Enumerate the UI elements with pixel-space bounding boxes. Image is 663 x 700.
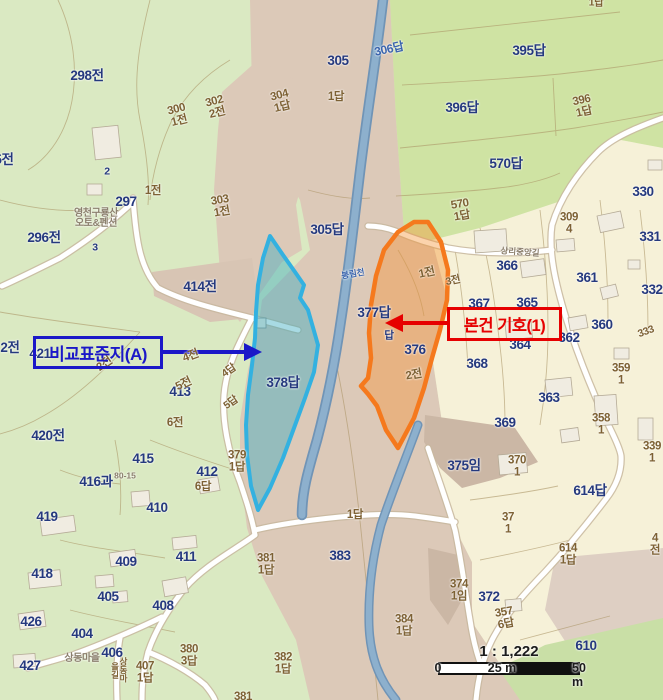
parcel-label: 381 [234,692,252,700]
parcel-label: 380 3답 [180,644,198,667]
parcel-label: 369 [494,416,515,430]
scale-bar-black-segment [509,664,578,673]
parcel-label: 304 1답 [269,88,292,115]
parcel-label: 412 [196,465,217,479]
parcel-label: 3전 [445,274,462,288]
parcel-label: 374 1임 [450,579,468,602]
comparison-standard-callout: 비교표준지(A) [33,336,163,369]
scale-tick-0: 0 [435,661,442,675]
parcel-label: 300 1전 [166,102,189,129]
stream-name-label: 봉림천 [341,268,366,281]
subject-parcel-callout: 본건 기호(1) [447,307,562,341]
parcel-label: 366 [496,259,517,273]
parcel-label: 416과 [79,475,112,489]
parcel-label: 396답 [445,101,478,115]
parcel-label: 395답 [512,44,545,58]
parcel-label: 309 4 [560,212,578,235]
scale-ratio: 1 : 1,222 [438,643,580,660]
parcel-label: 2전 [405,369,423,383]
parcel-label: 381 1답 [257,553,275,576]
parcel-label: 296전 [27,231,60,245]
parcel-label: 37 1 [502,512,514,535]
parcel-label: 361 [576,271,597,285]
parcel-label: 614답 [573,484,606,498]
comparison-standard-label: 비교표준지(A) [49,340,147,365]
parcel-label: 570 1답 [450,198,472,224]
parcel-label: 411 [176,550,197,564]
parcel-label: 5전 [0,153,14,167]
parcel-label: 339 1 [643,441,661,464]
parcel-label: 2전 [0,341,19,355]
parcel-label: 375임 [447,459,480,473]
parcel-label: 614 1답 [559,543,577,566]
parcel-label: 414전 [183,280,216,294]
parcel-label: 427 [19,659,40,673]
parcel-label: 6답 [195,482,211,494]
parcel-label: 297 [115,195,136,209]
parcel-label: 305 [327,54,348,68]
parcel-label: 377답 [357,306,390,320]
parcel-label: 379 1답 [228,450,246,473]
scale-tick-25: 25 m [488,661,517,675]
parcel-label: 404 [71,627,92,641]
parcel-label: 6전 [167,418,183,430]
parcel-label: 357 6답 [494,606,516,632]
pension-name-label: 영천구룡산 오토&펜션 [74,209,118,229]
parcel-label: 답 [384,331,393,342]
parcel-label: 405 [97,590,118,604]
parcel-label: 4전 [181,349,200,366]
scale-tick-50: 50 m [572,661,586,689]
parcel-label: 80-15 [114,472,136,481]
parcel-label: 305답 [310,223,343,237]
parcel-label: 1전 [418,267,436,282]
parcel-label: 378답 [266,376,299,390]
parcel-label: 410 [146,501,167,515]
parcel-label: 3 [92,243,97,254]
parcel-label: 384 1답 [395,614,413,637]
village-name-label: 상동마을 [64,654,99,664]
map-scale: 1 : 1,222 0 25 m 50 m [438,643,580,675]
parcel-label: 5전 [174,376,194,393]
parcel-label: 4전 [650,533,660,556]
road-name-label: 상동마을길 [111,655,128,685]
parcel-label: 368 [466,357,487,371]
parcel-label: 408 [152,599,173,613]
parcel-label: 419 [36,510,57,524]
parcel-label: 420전 [31,429,64,443]
parcel-label: 418 [31,567,52,581]
parcel-label: 376 [404,343,425,357]
parcel-label: 330 [632,185,653,199]
parcel-label: 298전 [70,69,103,83]
parcel-label: 409 [115,555,136,569]
parcel-label: 1답 [589,0,604,8]
parcel-label: 333 [636,324,655,340]
parcel-label: 426 [20,615,41,629]
parcel-label: 306답 [373,40,404,58]
parcel-label: 360 [591,318,612,332]
parcel-label: 4답 [220,362,238,379]
cadastral-map: 298전3051답304 1답302 2전300 1전306답395답396답3… [0,0,663,700]
parcel-label: 363 [538,391,559,405]
parcel-label: 359 1 [612,363,630,386]
parcel-label: 370 1 [508,455,526,478]
parcel-label: 382 1답 [274,652,292,675]
parcel-label: 2 [104,167,109,178]
parcel-label: 1답 [347,510,363,522]
parcel-label: 570답 [489,157,522,171]
parcel-label: 1전 [145,186,161,198]
parcel-label: 396 1답 [572,94,594,121]
parcel-label: 5답 [222,394,240,411]
parcel-label: 407 1답 [136,661,154,684]
parcel-label: 1답 [328,92,344,104]
parcel-label: 415 [132,452,153,466]
parcel-label: 332 [641,283,662,297]
parcel-label: 383 [329,549,350,563]
parcel-label: 358 1 [592,413,610,436]
parcel-label: 302 2전 [204,94,227,121]
subject-parcel-label: 본건 기호(1) [464,312,545,336]
parcel-label: 331 [639,230,660,244]
parcel-label: 303 1전 [210,194,232,220]
road-name-label: 상리중앙길 [500,246,540,257]
parcel-label: 372 [478,590,499,604]
